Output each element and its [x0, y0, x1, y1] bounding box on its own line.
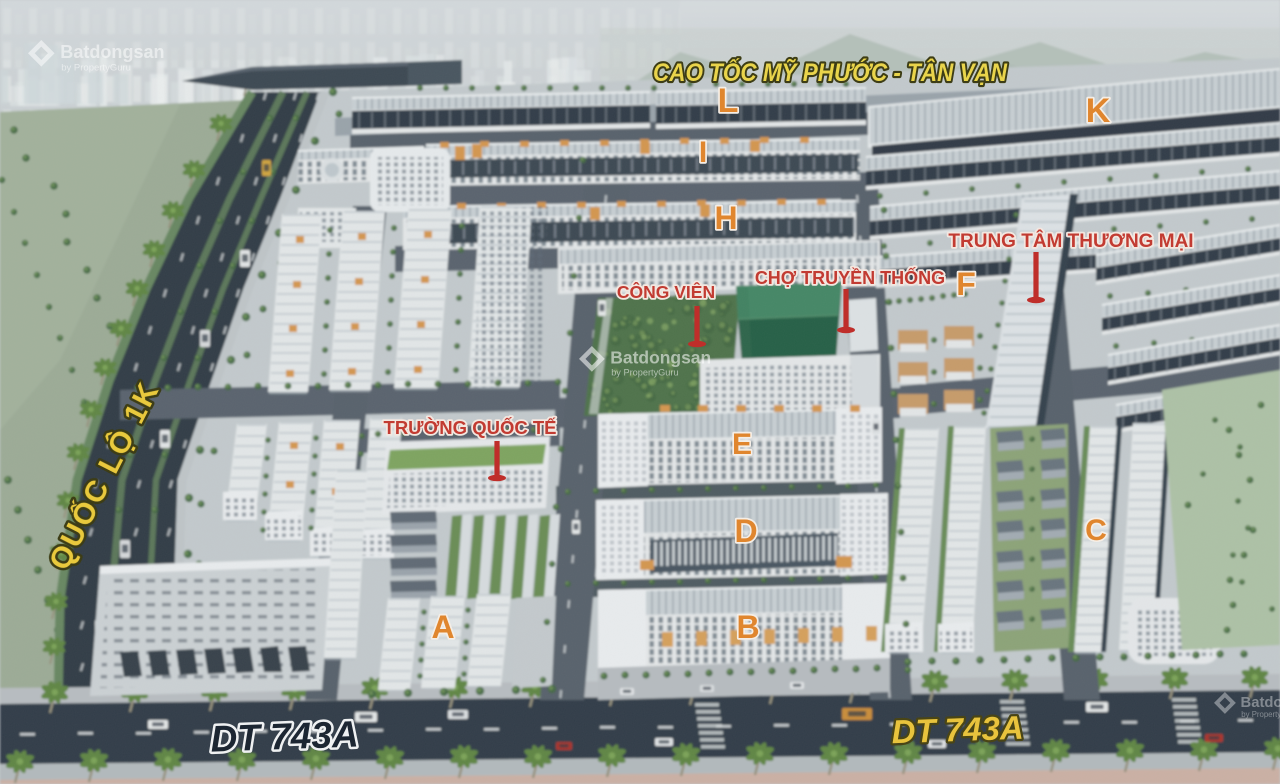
- svg-text:F: F: [956, 266, 976, 302]
- svg-text:DT 743A: DT 743A: [210, 713, 359, 759]
- svg-text:C: C: [1085, 514, 1107, 547]
- svg-text:B: B: [736, 609, 759, 645]
- svg-text:Batdongsan: Batdongsan: [60, 42, 164, 62]
- svg-text:by PropertyGuru: by PropertyGuru: [61, 62, 131, 73]
- svg-text:I: I: [699, 136, 707, 169]
- svg-text:H: H: [714, 200, 737, 236]
- svg-text:E: E: [732, 428, 752, 461]
- svg-text:D: D: [734, 513, 757, 549]
- svg-text:by PropertyGuru: by PropertyGuru: [611, 367, 678, 377]
- svg-text:by PropertyGuru: by PropertyGuru: [1241, 710, 1280, 719]
- svg-text:K: K: [1086, 92, 1111, 130]
- svg-text:CHỢ TRUYỀN THỐNG: CHỢ TRUYỀN THỐNG: [755, 267, 945, 288]
- svg-text:TRƯỜNG QUỐC TẾ: TRƯỜNG QUỐC TẾ: [384, 417, 557, 438]
- svg-text:L: L: [718, 82, 739, 120]
- svg-text:Batdongsan: Batdongsan: [1241, 695, 1280, 711]
- svg-text:TRUNG TÂM THƯƠNG MẠI: TRUNG TÂM THƯƠNG MẠI: [948, 230, 1193, 252]
- svg-text:Batdongsan: Batdongsan: [610, 347, 711, 367]
- svg-text:CAO TỐC MỸ PHƯỚC - TÂN VẠN: CAO TỐC MỸ PHƯỚC - TÂN VẠN: [653, 57, 1008, 87]
- svg-text:CÔNG VIÊN: CÔNG VIÊN: [617, 281, 715, 302]
- svg-text:A: A: [431, 609, 454, 645]
- svg-text:DT 743A: DT 743A: [891, 709, 1024, 751]
